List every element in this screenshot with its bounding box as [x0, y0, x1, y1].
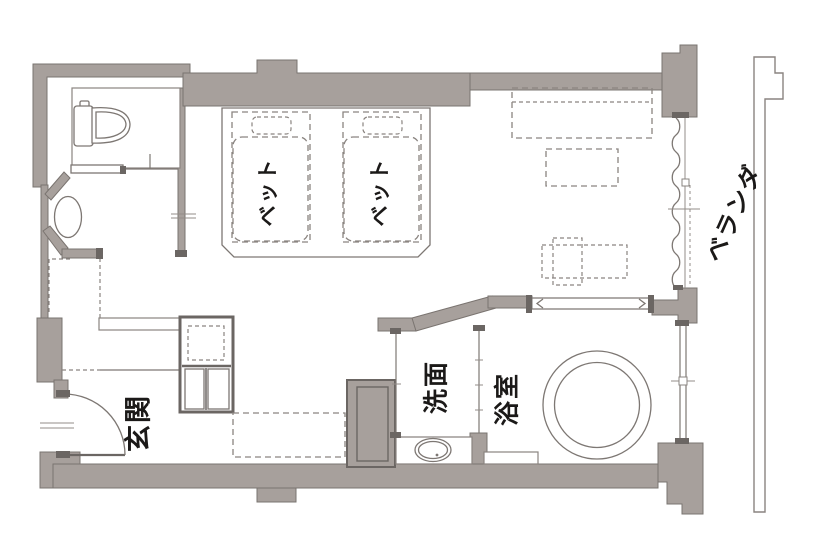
closet-unit: [180, 317, 233, 412]
wash-basin-icon: [55, 197, 82, 238]
pipe-shaft: [347, 380, 395, 467]
vanity-sink: [396, 437, 472, 464]
entrance-label: 玄関: [123, 394, 155, 452]
bath-step: [484, 452, 538, 464]
bed-right-label: ベット: [368, 158, 392, 227]
floor-plan-drawing: ベット ベット 玄関 洗面 浴室 ベランダ: [0, 0, 820, 560]
washroom-label: 洗面: [422, 360, 451, 414]
corridor-counter: [99, 318, 183, 330]
bathroom-label: 浴室: [493, 372, 522, 426]
floor-plan-page: ベット ベット 玄関 洗面 浴室 ベランダ: [0, 0, 820, 560]
bed-left-label: ベット: [256, 158, 280, 227]
